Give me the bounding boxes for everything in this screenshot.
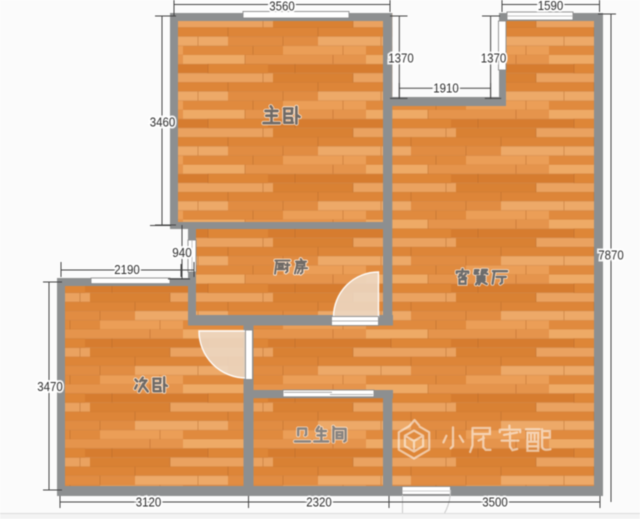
svg-text:3120: 3120 [136,494,162,509]
svg-text:7870: 7870 [598,248,624,263]
svg-text:2320: 2320 [306,494,332,509]
svg-text:3560: 3560 [269,0,295,13]
svg-text:3460: 3460 [150,114,176,129]
svg-text:3470: 3470 [37,379,63,394]
svg-text:1590: 1590 [538,0,564,13]
svg-text:2190: 2190 [114,262,140,277]
svg-text:3500: 3500 [482,494,508,509]
svg-text:1370: 1370 [481,51,507,66]
svg-text:940: 940 [172,245,192,260]
svg-text:1910: 1910 [433,80,459,95]
svg-text:1370: 1370 [388,51,414,66]
